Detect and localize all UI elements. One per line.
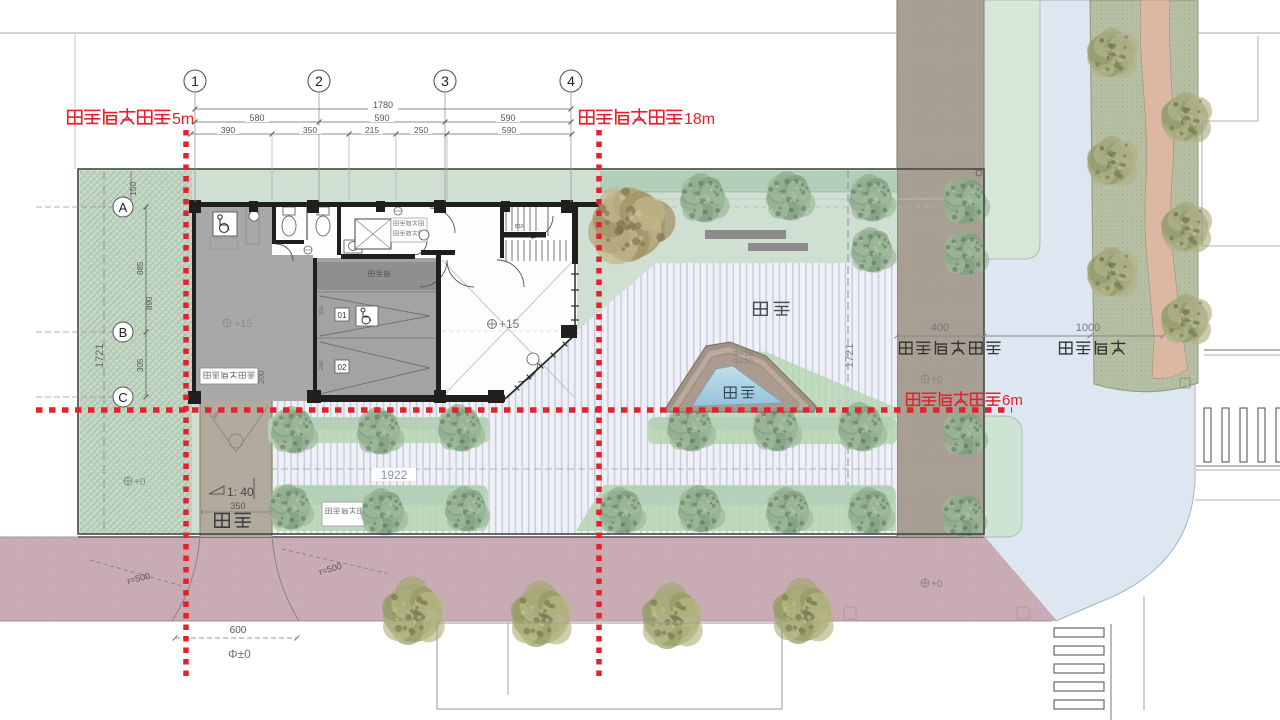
svg-text:350: 350 [303,125,317,135]
svg-text:1: 40: 1: 40 [227,485,254,499]
svg-text:250: 250 [319,361,325,370]
svg-text:1780: 1780 [373,100,393,110]
svg-text:350: 350 [319,306,325,315]
svg-text:590: 590 [502,125,516,135]
svg-text:390: 390 [221,125,235,135]
svg-text:600: 600 [230,625,247,636]
svg-text:890: 890 [145,296,154,310]
svg-text:2: 2 [315,73,323,89]
svg-text:4: 4 [567,73,575,89]
svg-text:885: 885 [136,261,145,275]
svg-text:5m: 5m [172,111,194,128]
svg-text:590: 590 [500,113,515,123]
svg-text:Φ+30: Φ+30 [733,357,754,366]
svg-text:1721: 1721 [844,344,856,368]
svg-text:+15: +15 [234,318,253,330]
svg-text:1000: 1000 [1076,322,1100,334]
svg-text:18m: 18m [684,111,715,128]
svg-text:01: 01 [338,311,347,320]
svg-text:+15: +15 [499,317,520,331]
svg-text:590: 590 [374,113,389,123]
svg-text:200: 200 [257,370,266,384]
svg-text:305: 305 [136,358,145,372]
svg-text:1922: 1922 [381,468,408,482]
svg-text:6m: 6m [1002,392,1023,409]
svg-text:B1F: B1F [515,224,524,230]
svg-text:3: 3 [441,73,449,89]
svg-text:580: 580 [249,113,264,123]
svg-text:A: A [119,200,128,215]
svg-text:400: 400 [931,322,949,334]
svg-text:Φ±0: Φ±0 [228,647,251,661]
svg-text:250: 250 [414,125,428,135]
svg-text:02: 02 [338,363,347,372]
svg-text:150: 150 [128,182,138,196]
svg-text:B: B [119,325,128,340]
svg-text:+0: +0 [134,477,146,488]
svg-text:+0: +0 [931,579,943,590]
svg-text:C: C [118,390,127,405]
svg-text:+0: +0 [931,375,943,386]
svg-text:1: 1 [191,73,199,89]
svg-text:350: 350 [230,501,245,511]
svg-text:215: 215 [365,125,379,135]
